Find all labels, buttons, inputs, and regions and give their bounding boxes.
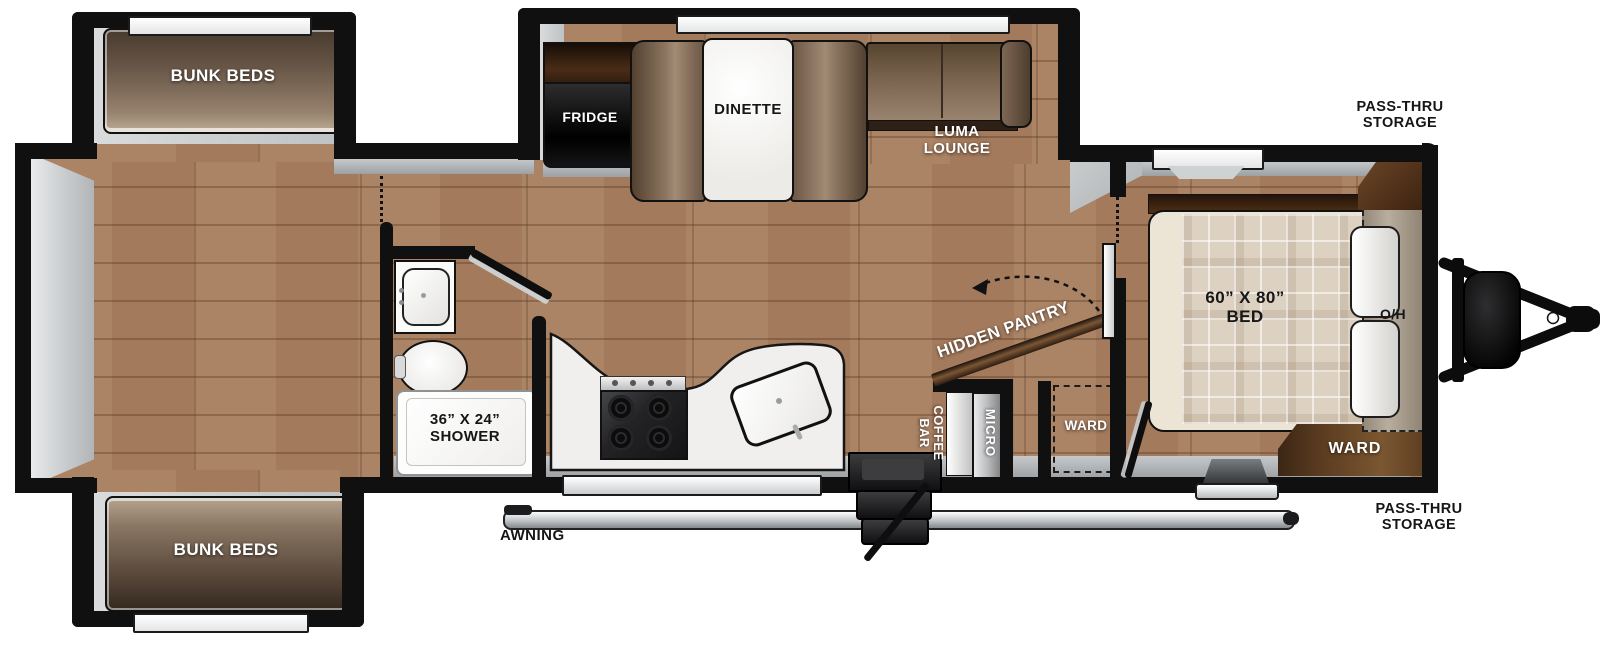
dinette-table [702,38,794,202]
bunk-slide-bottom-wall-left [72,477,94,627]
luma-lounge-label: LUMA LOUNGE [887,124,1027,158]
overhead-label: O/H [1370,307,1416,323]
floorplan-canvas: BUNK BEDS BUNK BEDS FRIDGE DINETTE LUMA … [0,0,1600,647]
bathroom-faucet-dot-1 [399,288,404,293]
kitchen-sink-drain [776,398,782,404]
hitch [1444,258,1600,382]
bathroom-drain-dot [421,293,426,298]
coffee-bar-cabinet [946,392,974,476]
bathroom-sink [402,268,450,326]
alcove-wall-right [1000,379,1013,478]
coffee-bar-label: COFFEE BAR [913,388,945,478]
hall-ward-wall-left [1038,381,1051,478]
bunk-bed-bottom-label: BUNK BEDS [116,540,336,559]
luma-lounge-cushion-divider [941,44,943,118]
bathroom-wall-left [380,222,393,478]
bunk-slide-bottom-wall-right [342,477,364,627]
bedroom-entry-step [1195,483,1279,500]
top-wall-mid-segment [334,143,530,159]
top-wall-trim-left [334,159,534,174]
bed-pillow-2 [1350,320,1400,418]
dinette-label: DINETTE [702,102,794,119]
bunk-slide-top-wall-left [72,12,94,159]
stove-burner-3 [608,425,634,451]
toilet-flush [394,355,406,379]
bathroom-faucet-dot-2 [399,300,404,305]
dinette-bench-left [630,40,706,202]
rear-wall-interior [30,150,94,490]
kitchen-wall-left [532,316,546,478]
window-kitchen-slide [676,15,1010,34]
fridge-label: FRIDGE [545,110,635,126]
bunk-slide-bottom-floor-opening [94,470,342,494]
toilet [398,340,468,396]
stove-burner-2 [646,395,672,421]
luma-lounge-armrest [1000,40,1032,128]
bunk-bed-top-label: BUNK BEDS [113,66,333,85]
kitchen-slide-wall-right [1058,8,1080,160]
stove-burner-4 [646,425,672,451]
window-bunk-top [128,16,312,36]
hitch-pin-hole [1548,313,1559,324]
bathroom-wall-top [380,246,475,259]
awning-end-cap-right [1283,512,1299,525]
bedroom-entry-threshold [1202,459,1270,486]
bunkroom-divider-dashed [380,176,386,222]
bedroom-door-opening-dashed [1116,197,1122,243]
stove-knob-1 [612,380,618,386]
front-wall [1422,143,1438,493]
hitch-coupler [1566,306,1596,332]
stove-knob-2 [630,380,636,386]
wardrobe-hall-label: WARD [1051,418,1121,433]
micro-label: MICRO [979,390,997,476]
window-kitchen-bottom [562,475,822,496]
bed-pillow-1 [1350,226,1400,318]
shower-label: 36” X 24” SHOWER [398,412,532,446]
window-bunk-bottom [133,613,309,633]
pass-thru-storage-label-top: PASS-THRU STORAGE [1329,100,1471,132]
rear-wall [15,143,31,493]
stove-burner-1 [608,395,634,421]
pass-thru-storage-label-bottom: PASS-THRU STORAGE [1348,502,1490,534]
stove-knob-4 [666,380,672,386]
bunk-slide-top-wall-right [334,12,356,159]
propane-tanks [1464,272,1520,368]
luma-lounge-sofa [866,42,1022,124]
awning-end-cap-left [504,505,532,515]
stove-knob-3 [648,380,654,386]
wardrobe-front-label: WARD [1300,440,1410,458]
bed-label: 60” X 80” BED [1165,288,1325,326]
awning-label: AWNING [500,528,600,545]
bedroom-wall-stub [1110,145,1126,197]
dinette-bench-right [790,40,868,202]
kitchen-slide-wall-left [518,8,540,160]
